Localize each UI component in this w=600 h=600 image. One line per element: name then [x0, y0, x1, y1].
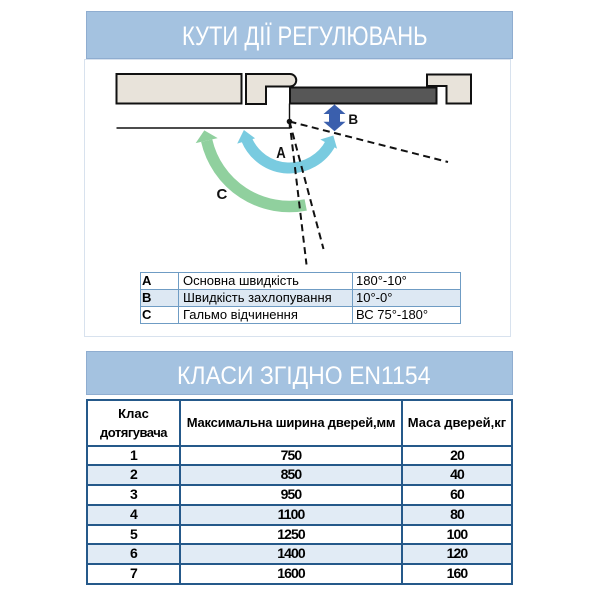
svg-text:B: B	[348, 112, 358, 127]
svg-text:C: C	[217, 186, 228, 203]
svg-text:A: A	[276, 145, 286, 162]
